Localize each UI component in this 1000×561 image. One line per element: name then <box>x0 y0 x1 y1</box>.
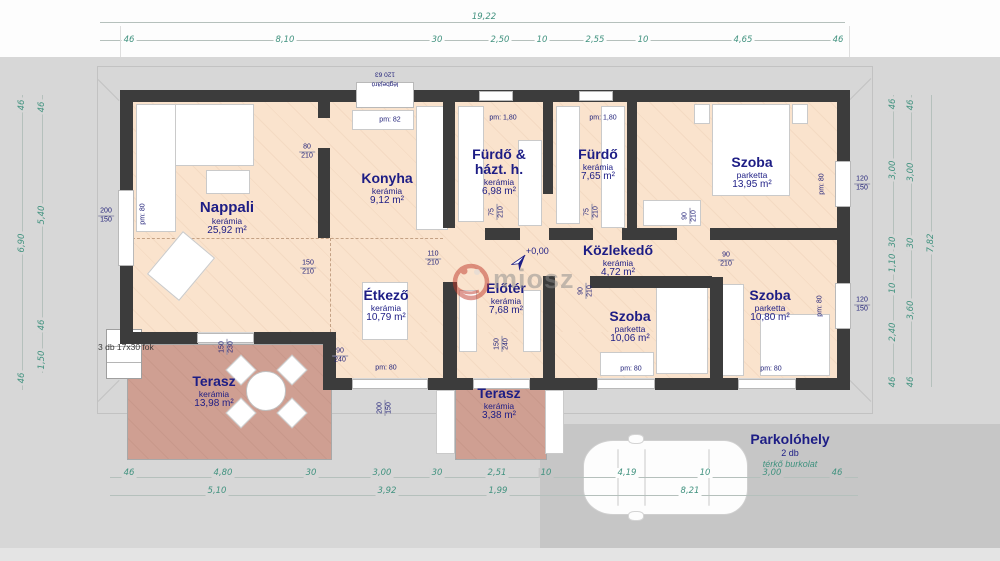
opening-size-label: 75210 <box>584 204 601 220</box>
dim-label: 10 <box>698 468 713 478</box>
terrace-side-step <box>436 390 455 454</box>
wall-segment <box>485 228 520 240</box>
wall-segment <box>796 378 850 390</box>
wall-segment <box>655 378 738 390</box>
room-label-terasz-2: Terasz kerámia 3,38 m² <box>477 386 520 422</box>
watermark-text: miosz <box>493 264 575 295</box>
vent-size-label: 120 63 <box>375 71 395 78</box>
extension-line <box>849 26 850 57</box>
dim-label: 5,40 <box>37 204 47 227</box>
wall-segment <box>543 102 553 194</box>
dim-label: 4,80 <box>212 468 235 478</box>
room-label-konyha: Konyha kerámia 9,12 m² <box>361 171 412 207</box>
parapet-label: pm: 80 <box>375 365 396 372</box>
garden-table <box>246 371 286 411</box>
open-plan-boundary <box>330 238 331 332</box>
dim-label: 10 <box>535 35 550 45</box>
parking-title: Parkolóhely <box>750 431 829 447</box>
parapet-label: pm: 80 <box>140 203 147 224</box>
parapet-label: pm: 80 <box>819 173 826 194</box>
top-margin-strip <box>0 0 1000 57</box>
opening-size-label: 200150 <box>98 208 114 225</box>
dim-label: 2,51 <box>486 468 509 478</box>
wall-segment <box>318 102 330 118</box>
nightstand <box>694 104 710 124</box>
wall-segment <box>318 148 330 238</box>
dim-label: 19,22 <box>470 12 498 22</box>
wall-segment <box>710 228 837 240</box>
car-mirror <box>628 511 644 521</box>
dim-label: 30 <box>304 468 319 478</box>
wall-segment <box>336 378 352 390</box>
stairs-note: 3 db 17x30 fok <box>98 342 154 352</box>
opening-size-label: 90210 <box>718 252 734 269</box>
dim-label: 10 <box>888 281 898 296</box>
window <box>118 190 134 266</box>
wall-segment <box>710 277 723 378</box>
wall-segment <box>428 378 473 390</box>
wall-segment <box>549 228 593 240</box>
vent-text-label: légbejáró <box>372 81 399 88</box>
room-label-terasz-1: Terasz kerámia 13,98 m² <box>192 374 235 410</box>
opening-size-label: 75210 <box>489 204 506 220</box>
dim-label: 46 <box>888 97 898 112</box>
parapet-label: pm: 82 <box>379 117 400 124</box>
window <box>835 283 851 329</box>
opening-size-label: 110210 <box>425 251 441 268</box>
dim-label: 30 <box>888 235 898 250</box>
dim-label: 5,10 <box>206 486 229 496</box>
room-label-szoba-3: Szoba parketta 10,80 m² <box>749 288 790 324</box>
wall-segment <box>443 102 455 228</box>
dim-label: 2,40 <box>888 321 898 344</box>
bathroom-fixtures <box>556 106 580 224</box>
dim-label: 46 <box>122 35 137 45</box>
dim-label: 46 <box>888 375 898 390</box>
dim-label: 2,50 <box>489 35 512 45</box>
dim-label: 46 <box>37 100 47 115</box>
dim-label: 10 <box>539 468 554 478</box>
dim-label: 3,60 <box>906 299 916 322</box>
dim-label: 2,55 <box>584 35 607 45</box>
car-mirror <box>628 434 644 444</box>
dim-label: 6,90 <box>17 232 27 255</box>
dimension-line <box>100 22 845 23</box>
room-label-furdo-hazt: Fürdő & házt. h. kerámia 6,98 m² <box>457 147 541 198</box>
dim-label: 46 <box>906 98 916 113</box>
opening-size-label: 80210 <box>299 144 315 161</box>
bed <box>656 284 708 374</box>
dim-label: 4,19 <box>616 468 639 478</box>
window <box>352 379 428 389</box>
wall-segment <box>837 90 850 390</box>
terrace-side-step <box>545 390 564 454</box>
dim-label: 3,92 <box>376 486 399 496</box>
dim-label: 46 <box>906 375 916 390</box>
wall-segment <box>627 102 637 228</box>
watermark-logo-icon <box>450 261 492 303</box>
opening-size-label: 200150 <box>377 400 394 416</box>
window <box>479 91 513 101</box>
opening-size-label: 90240 <box>332 348 348 365</box>
window <box>579 91 613 101</box>
dim-label: 46 <box>831 35 846 45</box>
wall-segment <box>530 378 597 390</box>
dim-label: 3,00 <box>371 468 394 478</box>
dim-label: 4,65 <box>732 35 755 45</box>
nightstand <box>792 104 808 124</box>
dim-label: 46 <box>122 468 137 478</box>
dim-label: 30 <box>430 35 445 45</box>
opening-size-label: 150210 <box>300 260 316 277</box>
dim-label: 10 <box>636 35 651 45</box>
level-marker: +0,00 <box>526 246 549 256</box>
dim-label: 1,10 <box>888 252 898 275</box>
opening-size-label: 150240 <box>494 336 511 352</box>
opening-size-label: 150230 <box>219 339 236 355</box>
opening-size-label: 120150 <box>854 176 870 193</box>
room-label-etkezo: Étkező kerámia 10,79 m² <box>363 288 408 324</box>
dim-label: 3,00 <box>888 159 898 182</box>
dim-label: 8,21 <box>679 486 702 496</box>
room-label-szoba-2: Szoba parketta 10,06 m² <box>609 309 650 345</box>
room-label-szoba-1: Szoba parketta 13,95 m² <box>731 155 772 191</box>
bottom-margin-strip <box>0 548 1000 561</box>
room-label-furdo: Fürdő kerámia 7,65 m² <box>578 147 618 183</box>
dim-label: 1,50 <box>37 349 47 372</box>
parapet-label: pm: 1,80 <box>489 115 516 122</box>
dim-label: 46 <box>830 468 845 478</box>
room-label-nappali: Nappali kerámia 25,92 m² <box>200 200 254 237</box>
opening-size-label: 120150 <box>854 297 870 314</box>
dim-label: 3,00 <box>761 468 784 478</box>
parapet-label: pm: 80 <box>760 366 781 373</box>
floor-plan-canvas: Nappali kerámia 25,92 m² Konyha kerámia … <box>0 0 1000 561</box>
coffee-table <box>206 170 250 194</box>
room-label-kozlekedo: Közlekedő kerámia 4,72 m² <box>583 243 653 279</box>
wall-segment <box>622 228 677 240</box>
dim-label: 30 <box>430 468 445 478</box>
opening-size-label: 90210 <box>682 208 699 224</box>
window <box>835 161 851 207</box>
parapet-label: pm: 80 <box>817 295 824 316</box>
dim-label: 3,00 <box>906 161 916 184</box>
opening-size-label: 90210 <box>578 283 595 299</box>
parapet-label: pm: 1,80 <box>589 115 616 122</box>
parking-count: 2 db <box>781 448 799 458</box>
dim-label: 7,82 <box>926 232 936 255</box>
dim-label: 8,10 <box>274 35 297 45</box>
dim-label: 1,99 <box>487 486 510 496</box>
dim-label: 30 <box>906 236 916 251</box>
window <box>597 379 655 389</box>
window <box>738 379 796 389</box>
dim-label: 46 <box>17 371 27 386</box>
dim-label: 46 <box>17 98 27 113</box>
dim-label: 46 <box>37 318 47 333</box>
wall-segment <box>543 282 555 378</box>
parapet-label: pm: 80 <box>620 366 641 373</box>
